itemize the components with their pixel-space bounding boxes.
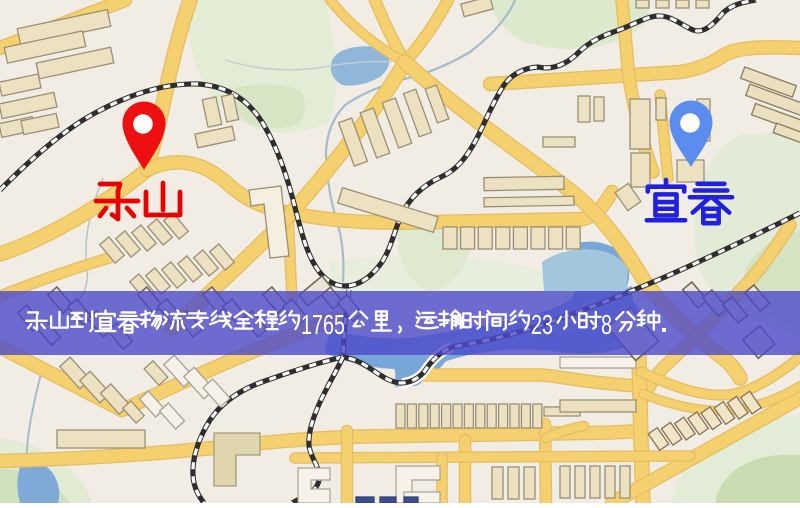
svg-text:1765: 1765 [301, 309, 345, 340]
svg-text:23: 23 [531, 309, 553, 340]
svg-text:8: 8 [601, 309, 612, 340]
